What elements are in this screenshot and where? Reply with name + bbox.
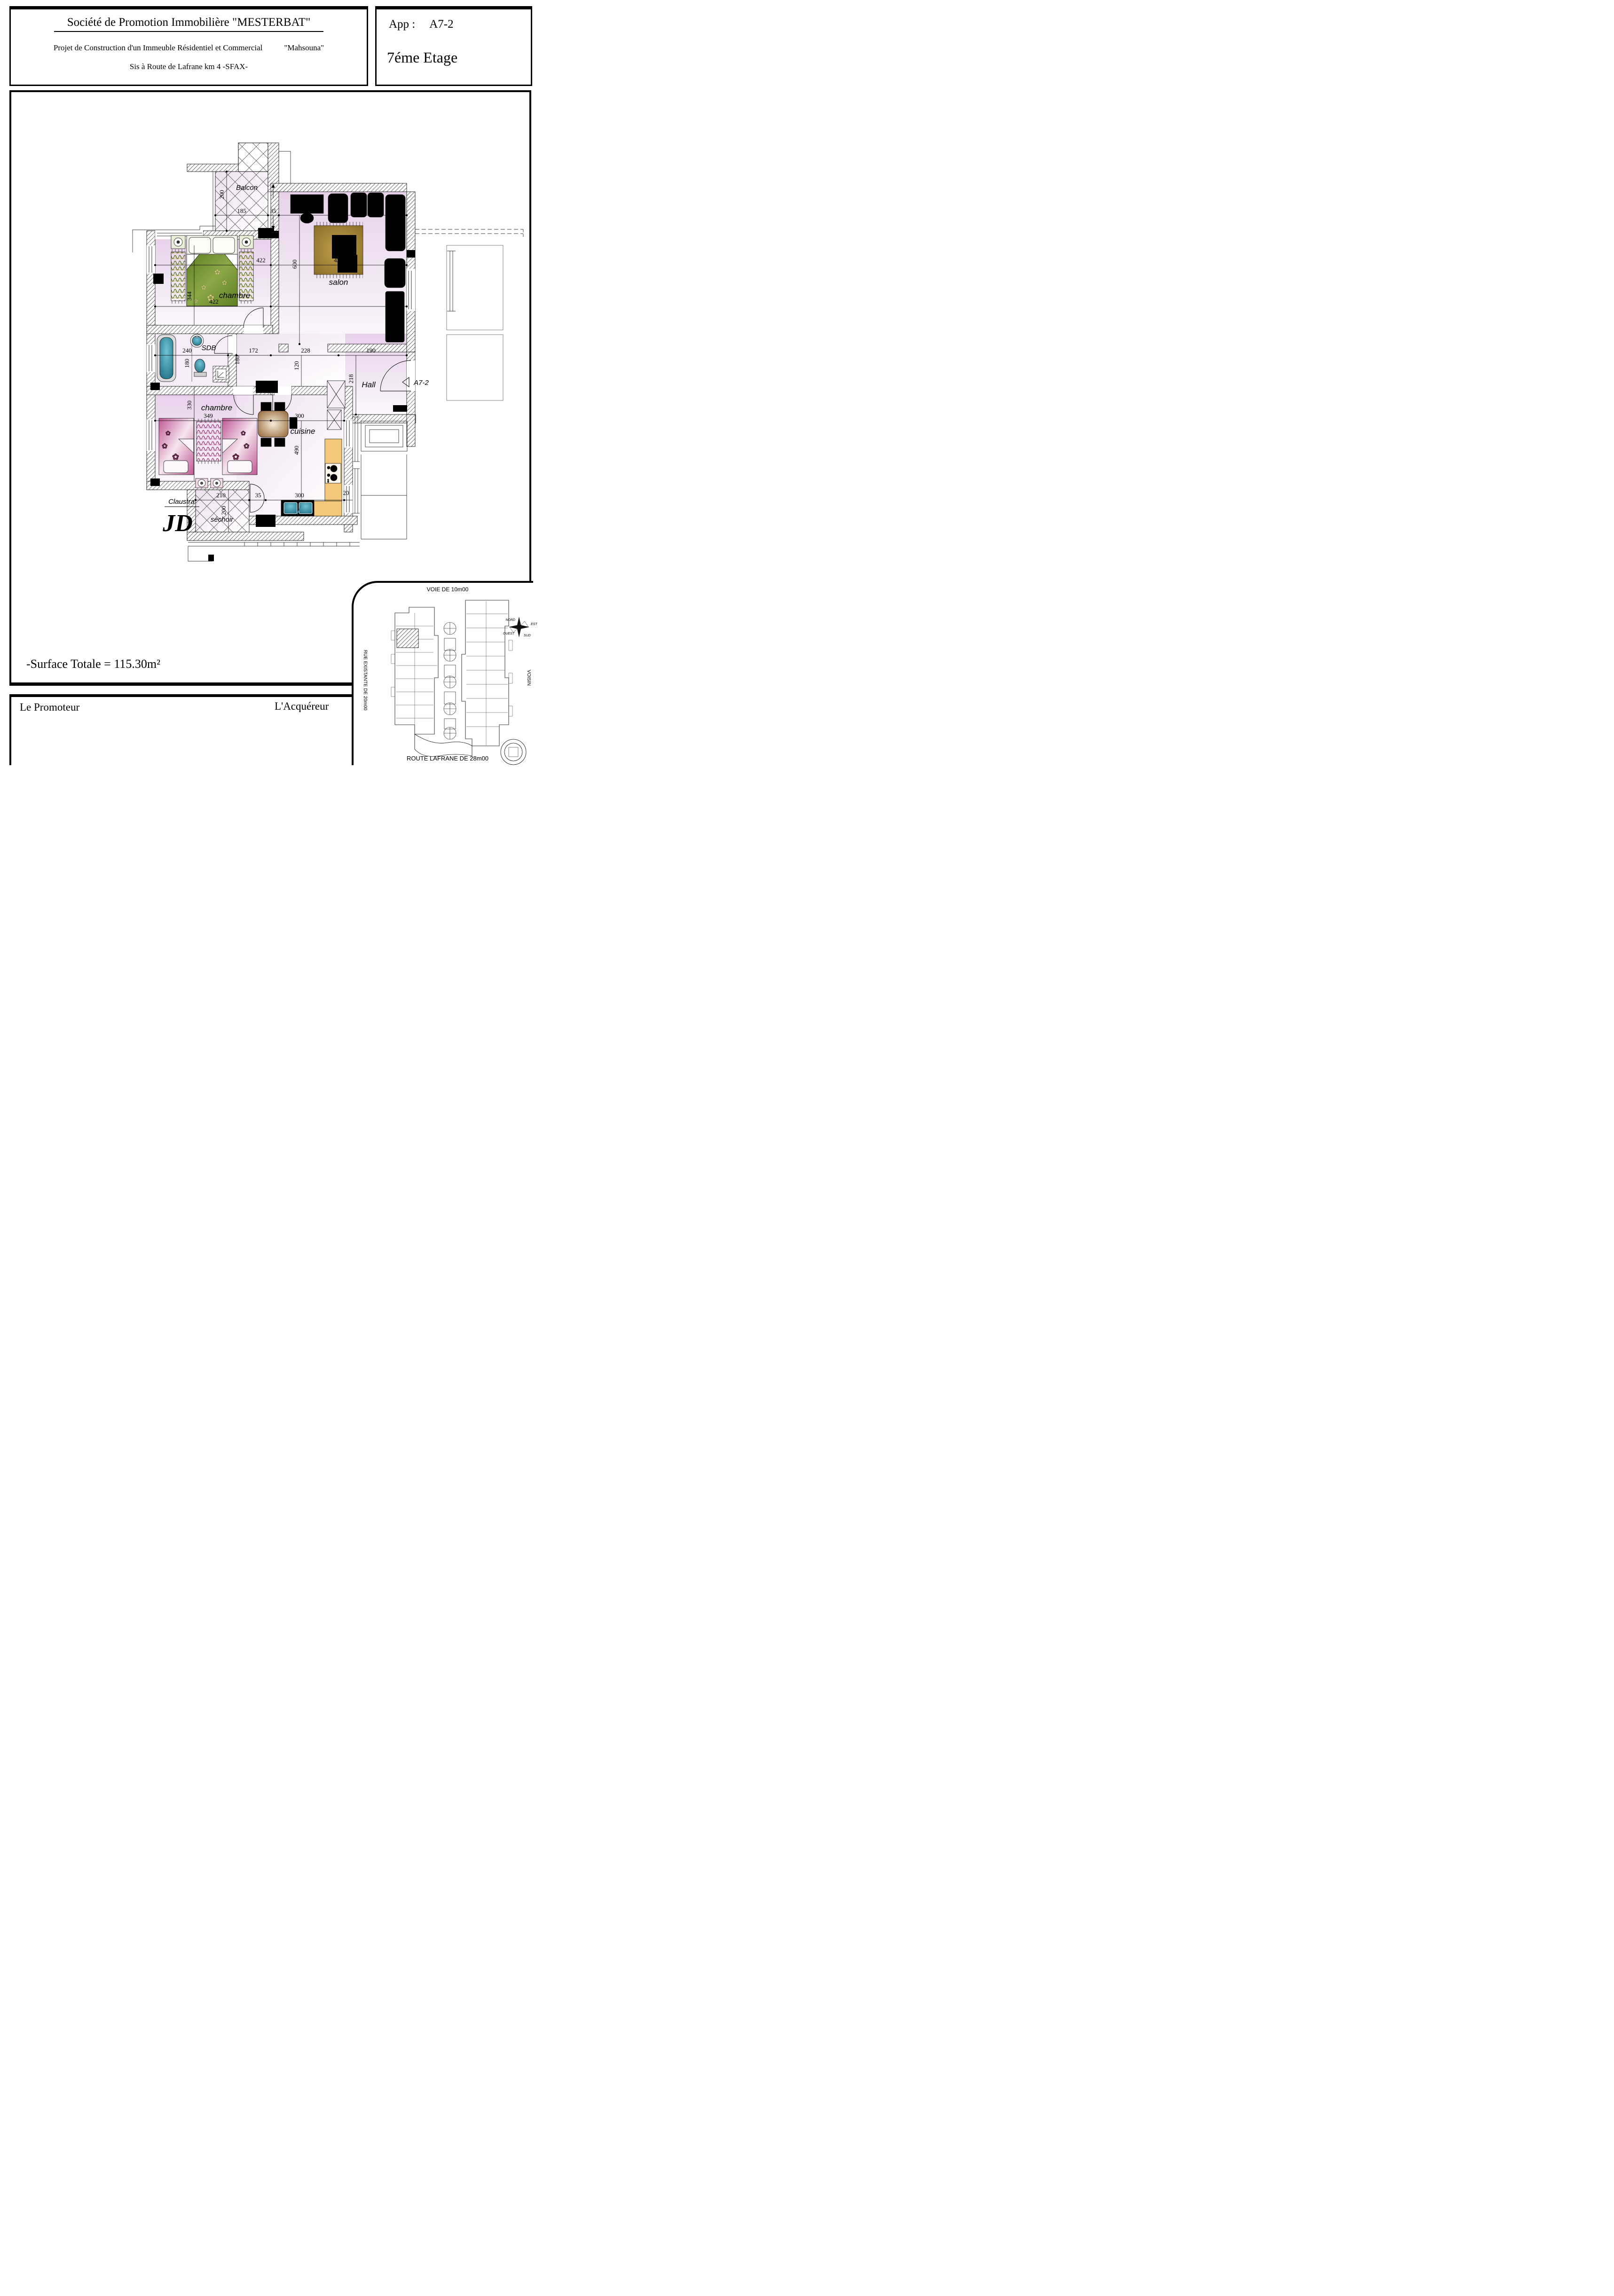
dim-sdb-width: 240	[182, 347, 192, 354]
compass-rose: NORD EST OUEST SUD	[503, 617, 537, 637]
dim-rug-width: 430	[334, 257, 343, 264]
dim-chambre2-width: 349	[204, 412, 213, 419]
site-building	[391, 600, 526, 765]
site-neighbor-right: VOISIN	[526, 670, 531, 686]
dim-chambre1-width: 422	[256, 257, 266, 264]
label-sechoir: séchoir	[211, 516, 234, 524]
site-road-top: VOIE DE 10m00	[427, 586, 469, 593]
svg-text:✿: ✿	[201, 284, 206, 291]
svg-text:✿: ✿	[165, 430, 171, 437]
dim-salon-depth: 600	[291, 259, 298, 269]
footer-border-left	[9, 694, 11, 765]
address-line: Sis à Route de Lafrane km 4 -SFAX-	[11, 62, 367, 71]
dim-chambre2-depth: 330	[186, 400, 193, 410]
promoter-label: Le Promoteur	[20, 701, 79, 713]
svg-text:✿: ✿	[244, 443, 250, 450]
dim-corridor-172: 172	[249, 347, 258, 354]
svg-text:✿: ✿	[162, 443, 168, 450]
site-labels: VOIE DE 10m00 RUE EXISTANTE DE 20m00 VOI…	[362, 586, 531, 762]
label-hall: Hall	[362, 380, 376, 389]
site-apartment-highlight	[397, 629, 418, 648]
dim-chambre1-width2: 422	[209, 298, 219, 305]
svg-text:✿: ✿	[232, 452, 239, 462]
dim-balcon-depth: 200	[218, 190, 225, 199]
dim-sechoir-width: 210	[216, 492, 226, 499]
dim-chambre1-depth: 344	[186, 291, 193, 301]
label-salon: salon	[329, 278, 348, 287]
dim-wall-top: 35	[270, 207, 276, 214]
dim-hall-depth: 218	[347, 374, 354, 384]
dim-sechoir-depth: 200	[220, 506, 227, 515]
svg-text:✿: ✿	[194, 298, 198, 304]
dim-corridor-120: 120	[293, 361, 300, 370]
dim-cuisine-width2: 300	[295, 492, 304, 499]
acquirer-label: L'Acquéreur	[275, 700, 329, 713]
label-balcon: Balcon	[236, 184, 258, 192]
dim-salon-width: 430	[334, 207, 343, 214]
label-claustra: Claustra	[168, 498, 195, 506]
label-chambre2: chambre	[201, 403, 232, 412]
svg-text:✿: ✿	[222, 279, 227, 286]
dim-wall-bottom: 35	[255, 492, 261, 499]
company-title: Société de Promotion Immobilière "MESTER…	[11, 16, 367, 32]
drawing-sheet: Société de Promotion Immobilière "MESTER…	[0, 0, 538, 765]
site-road-bottom: ROUTE LAFRANE DE 28m00	[407, 755, 488, 762]
floor-label: 7éme Etage	[387, 49, 457, 66]
dim-corridor-228: 228	[301, 347, 310, 354]
svg-text:✿: ✿	[241, 430, 246, 437]
surface-total: -Surface Totale = 115.30m²	[26, 657, 160, 671]
project-line: Projet de Construction d'un Immeuble Rés…	[11, 43, 367, 53]
svg-text:✿: ✿	[172, 452, 179, 462]
compass-east: EST	[531, 623, 537, 626]
dim-cuisine-width: 300	[295, 412, 304, 419]
label-signature: JD	[162, 510, 193, 537]
label-entrance: A7-2	[413, 379, 429, 387]
header-app-block: App :A7-2 7éme Etage	[375, 6, 532, 86]
dim-counter: 20	[343, 489, 349, 496]
apartment-number: App :A7-2	[389, 18, 454, 31]
svg-text:✿: ✿	[214, 269, 220, 276]
dim-cuisine-depth: 490	[293, 446, 300, 455]
site-road-left: RUE EXISTANTE DE 20m00	[362, 650, 368, 711]
label-sdb: SDB	[202, 344, 216, 352]
footer-border-top	[9, 694, 352, 697]
dim-corridor-depth: 180	[234, 355, 241, 365]
compass-south: SUD	[524, 634, 531, 637]
header-title-block: Société de Promotion Immobilière "MESTER…	[9, 6, 368, 86]
dim-balcon-width: 185	[237, 207, 246, 214]
compass-west: OUEST	[503, 632, 515, 635]
main-border-bottom	[9, 682, 354, 686]
site-plan: NORD EST OUEST SUD VOIE DE 10m00 RUE EXI…	[354, 584, 538, 765]
compass-north: NORD	[505, 619, 515, 622]
dim-sdb-depth: 180	[183, 359, 190, 368]
dim-hall-width: 190	[366, 347, 376, 354]
label-cuisine: cuisine	[291, 427, 315, 436]
label-chambre1: chambre	[219, 291, 250, 300]
